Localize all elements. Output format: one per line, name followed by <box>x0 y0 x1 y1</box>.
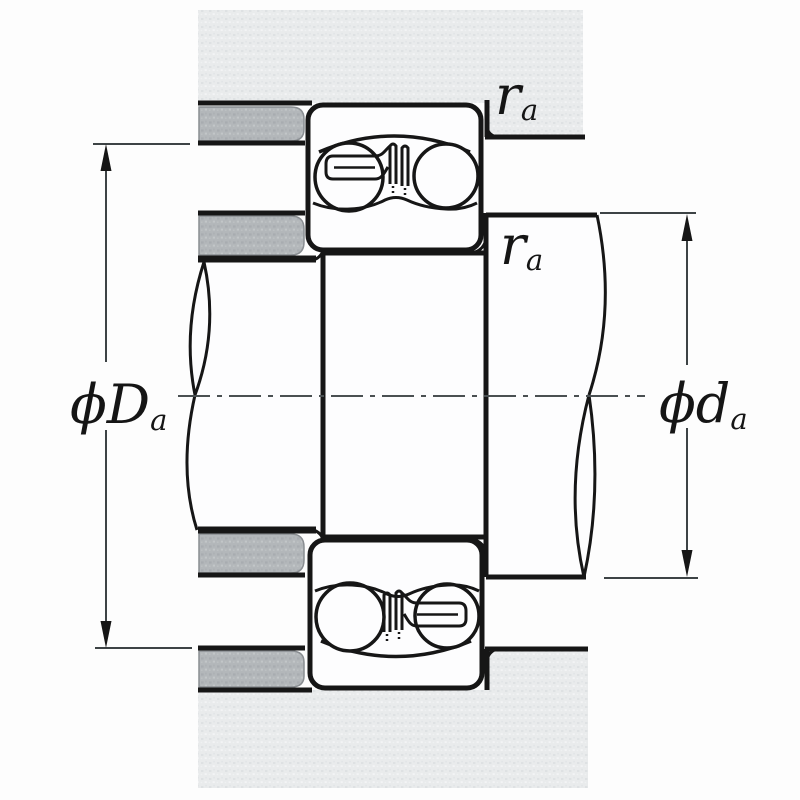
ball-top-right <box>414 144 478 208</box>
ball-bottom-right <box>415 584 479 648</box>
bearing-section-top <box>308 105 481 250</box>
bearing-section-bottom <box>310 540 482 688</box>
spacer-block-outer-top <box>199 107 304 141</box>
spacer-block-outer-bottom <box>199 651 304 687</box>
ball-top-left <box>315 143 383 211</box>
Da-arrow-up <box>101 144 112 171</box>
diagram-canvas: ϕDa ϕda ra ra <box>0 0 800 800</box>
spacer-block-inner-bottom <box>199 534 304 573</box>
Da-arrow-down <box>101 621 112 648</box>
ball-bottom-left <box>316 583 384 651</box>
da-arrow-down <box>682 550 693 577</box>
bearing-mounting-diagram: ϕDa ϕda ra ra <box>0 0 800 800</box>
label-phi-da: ϕda <box>659 372 748 436</box>
da-arrow-up <box>682 214 693 241</box>
label-phi-Da: ϕDa <box>70 373 167 437</box>
spacer-block-inner-top <box>199 216 304 255</box>
